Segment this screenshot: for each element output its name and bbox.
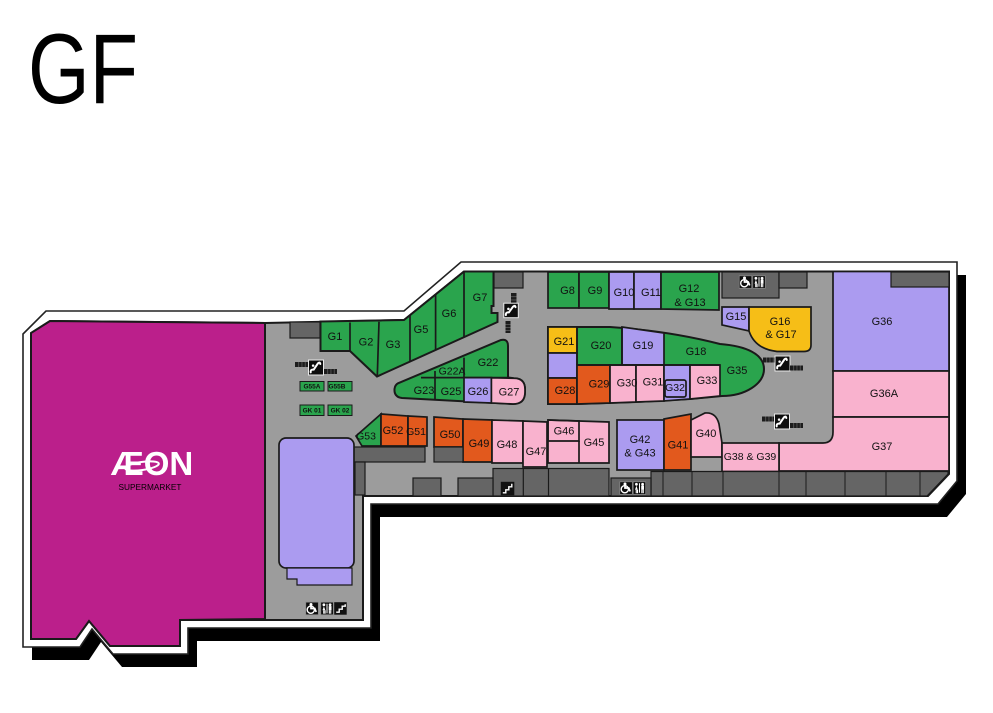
svg-text:G18: G18 bbox=[686, 346, 707, 358]
svg-text:G49: G49 bbox=[469, 438, 490, 450]
svg-text:& G43: & G43 bbox=[624, 447, 655, 459]
svg-text:GF: GF bbox=[28, 13, 138, 124]
svg-text:& G13: & G13 bbox=[674, 297, 705, 309]
svg-text:G38 & G39: G38 & G39 bbox=[724, 451, 777, 463]
svg-text:G20: G20 bbox=[591, 340, 612, 352]
svg-text:G52: G52 bbox=[383, 425, 404, 437]
svg-text:G10: G10 bbox=[614, 287, 635, 299]
svg-text:G2: G2 bbox=[359, 336, 374, 348]
svg-text:G21: G21 bbox=[554, 336, 575, 348]
svg-text:G47: G47 bbox=[526, 446, 547, 458]
svg-text:G51: G51 bbox=[406, 426, 426, 438]
svg-text:G23: G23 bbox=[414, 385, 435, 397]
svg-text:G9: G9 bbox=[588, 285, 603, 297]
svg-text:G30: G30 bbox=[617, 377, 638, 389]
svg-text:G7: G7 bbox=[473, 292, 488, 304]
svg-text:G35: G35 bbox=[727, 365, 748, 377]
svg-text:ÆON: ÆON bbox=[111, 445, 194, 482]
svg-text:G16: G16 bbox=[770, 316, 791, 328]
svg-text:& G17: & G17 bbox=[765, 329, 796, 341]
svg-text:G3: G3 bbox=[386, 339, 401, 351]
svg-text:G26: G26 bbox=[468, 386, 489, 398]
svg-text:G5: G5 bbox=[414, 324, 429, 336]
svg-text:G37: G37 bbox=[872, 441, 893, 453]
svg-text:SUPERMARKET: SUPERMARKET bbox=[119, 482, 182, 492]
svg-text:G11: G11 bbox=[641, 287, 661, 299]
svg-text:G36A: G36A bbox=[870, 388, 899, 400]
svg-text:G45: G45 bbox=[584, 437, 605, 449]
svg-text:G31: G31 bbox=[643, 376, 664, 388]
svg-text:G15: G15 bbox=[726, 311, 747, 323]
svg-text:G32: G32 bbox=[665, 382, 685, 394]
svg-text:G19: G19 bbox=[633, 340, 654, 352]
svg-text:G46: G46 bbox=[554, 425, 575, 437]
svg-text:G29: G29 bbox=[589, 378, 610, 390]
svg-text:G22: G22 bbox=[478, 357, 499, 369]
svg-text:G41: G41 bbox=[668, 439, 689, 451]
svg-text:G53: G53 bbox=[356, 430, 376, 442]
svg-text:G55B: G55B bbox=[329, 384, 346, 391]
svg-text:G1: G1 bbox=[328, 331, 343, 343]
svg-text:G6: G6 bbox=[442, 308, 457, 320]
svg-text:G27: G27 bbox=[499, 386, 520, 398]
svg-text:G12: G12 bbox=[679, 283, 700, 295]
svg-text:G25: G25 bbox=[441, 386, 462, 398]
svg-text:GK 01: GK 01 bbox=[303, 408, 322, 415]
svg-text:G50: G50 bbox=[440, 429, 461, 441]
svg-text:G28: G28 bbox=[555, 385, 576, 397]
svg-text:G33: G33 bbox=[697, 375, 718, 387]
svg-text:G36: G36 bbox=[872, 316, 893, 328]
svg-text:G40: G40 bbox=[696, 428, 717, 440]
svg-text:GK 02: GK 02 bbox=[331, 408, 350, 415]
svg-text:G8: G8 bbox=[560, 285, 575, 297]
svg-text:G55A: G55A bbox=[304, 384, 321, 391]
svg-text:G42: G42 bbox=[630, 434, 651, 446]
svg-text:G48: G48 bbox=[497, 439, 518, 451]
svg-text:G22A: G22A bbox=[439, 365, 466, 377]
